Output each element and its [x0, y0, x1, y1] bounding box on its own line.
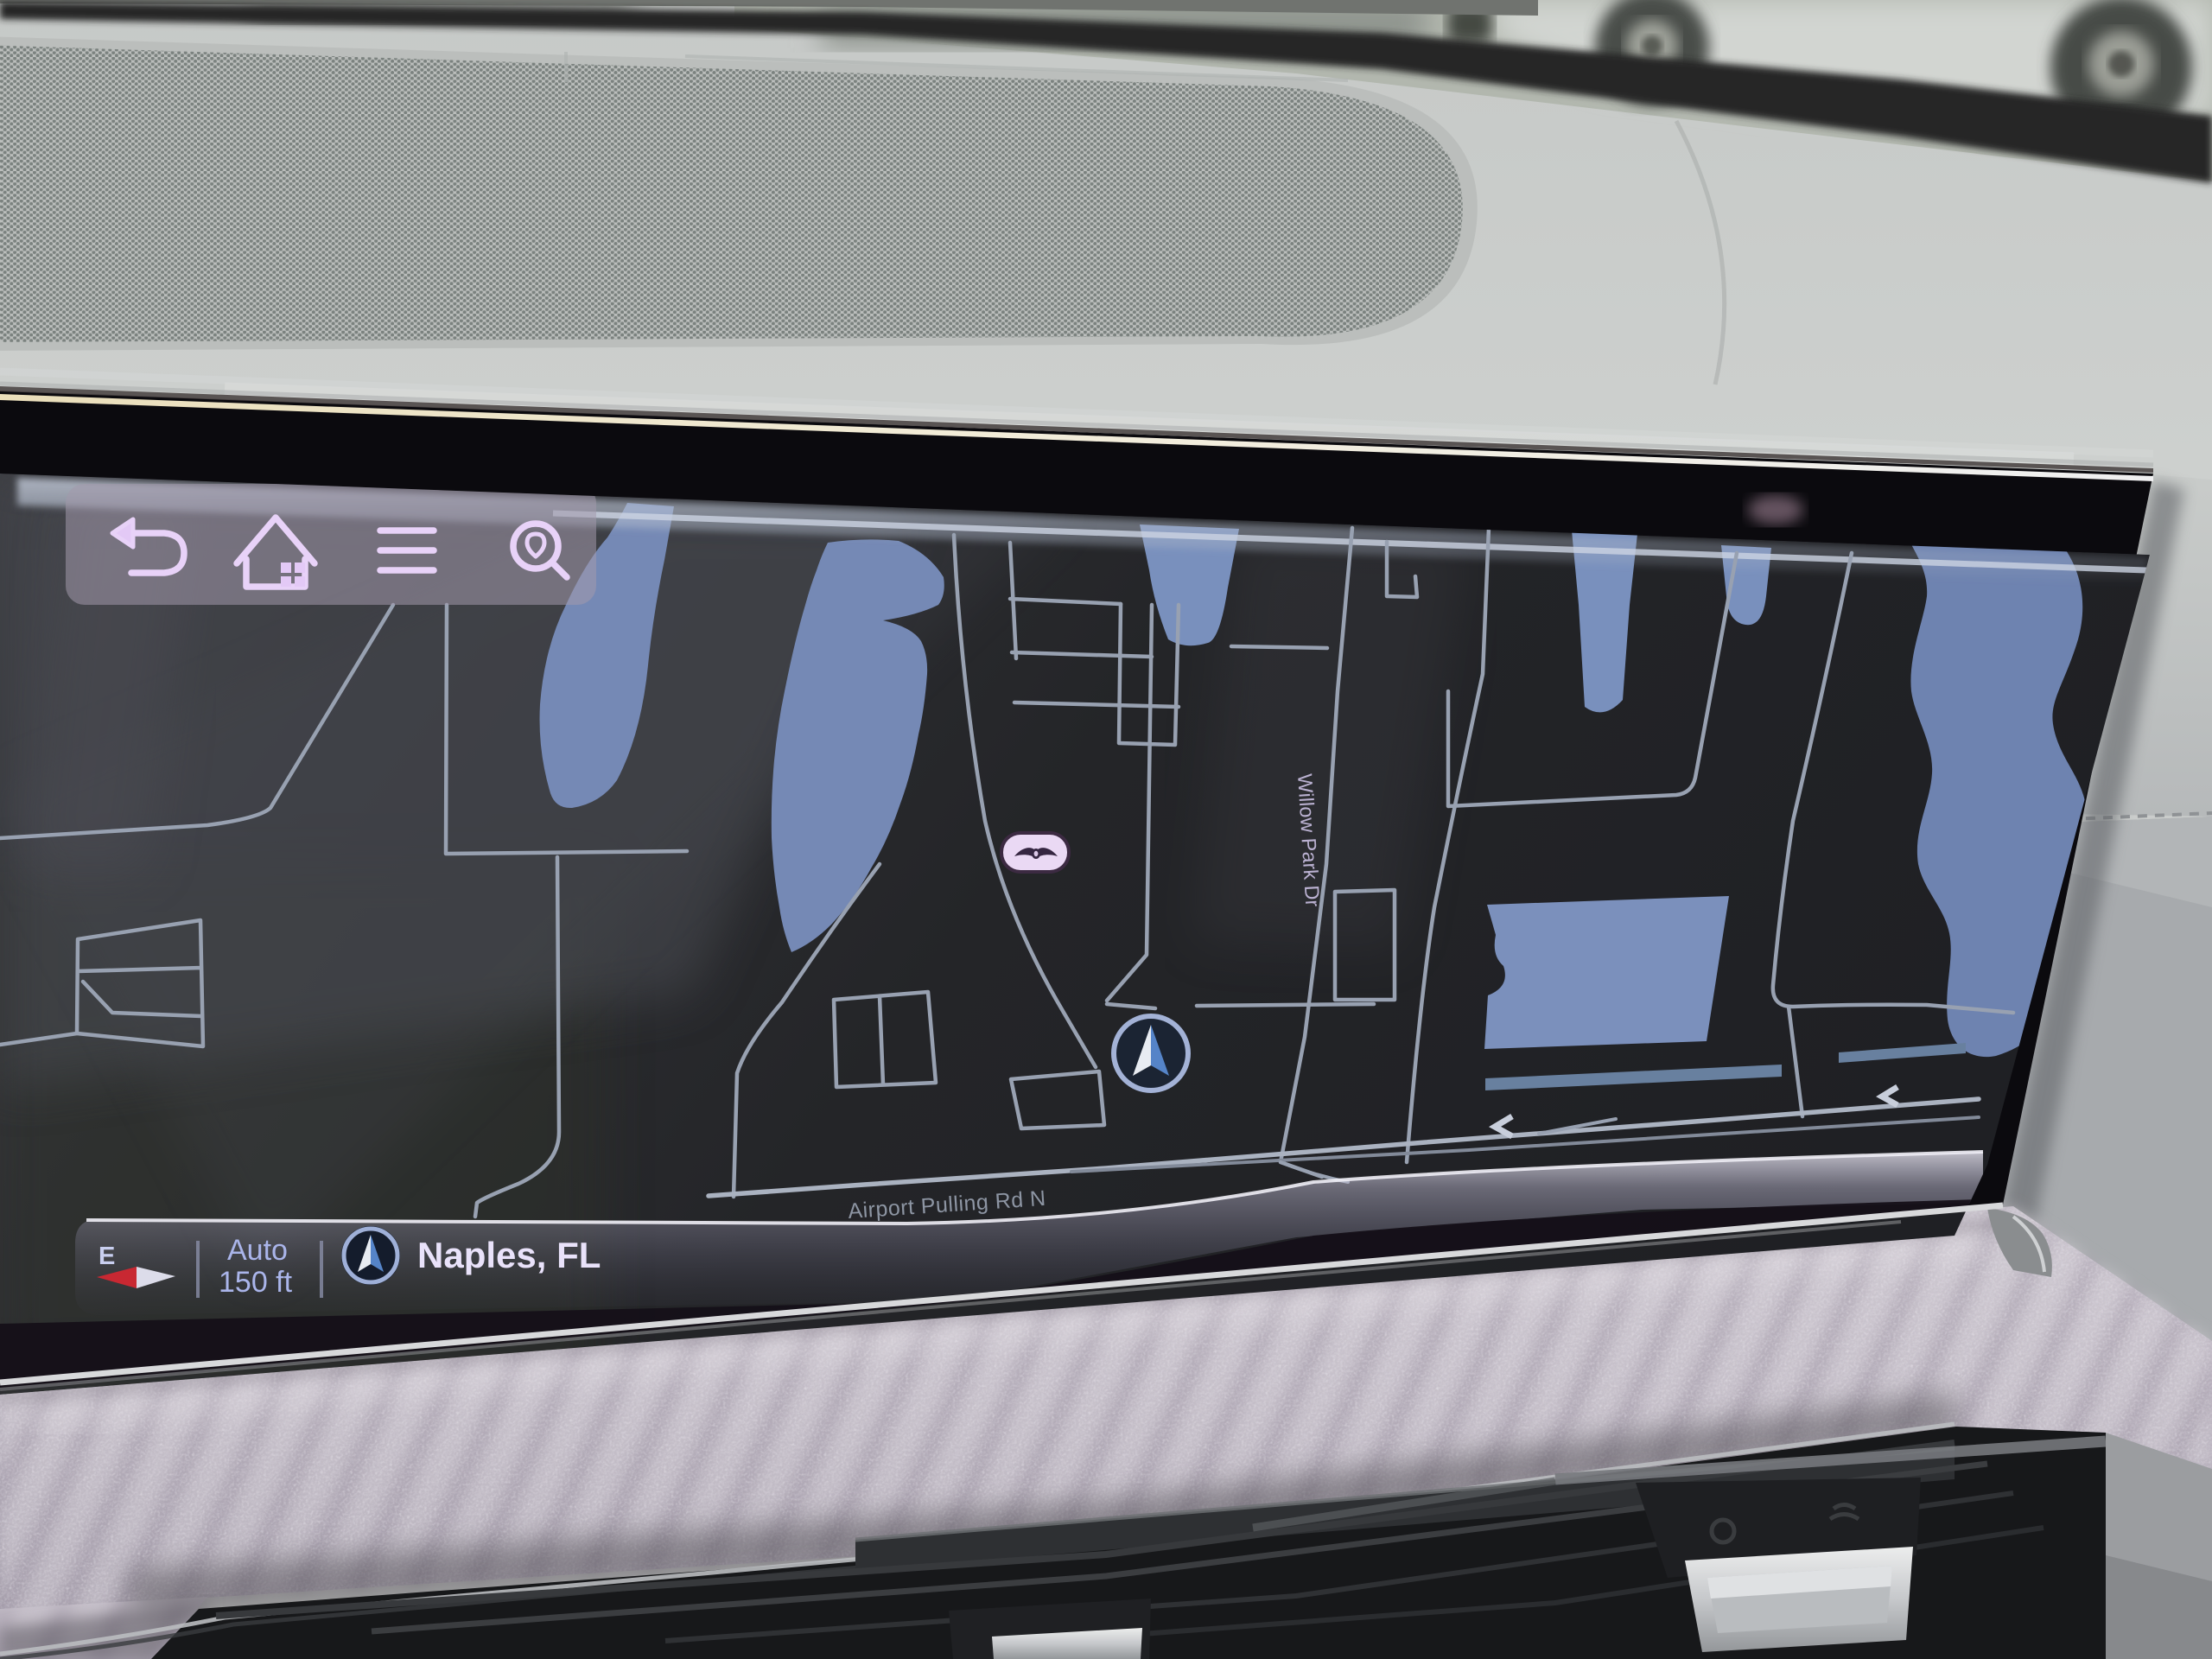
svg-text:Naples, FL: Naples, FL [417, 1235, 601, 1275]
svg-text:150 ft: 150 ft [219, 1266, 293, 1299]
svg-text:Auto: Auto [227, 1234, 288, 1267]
svg-text:E: E [99, 1243, 115, 1270]
